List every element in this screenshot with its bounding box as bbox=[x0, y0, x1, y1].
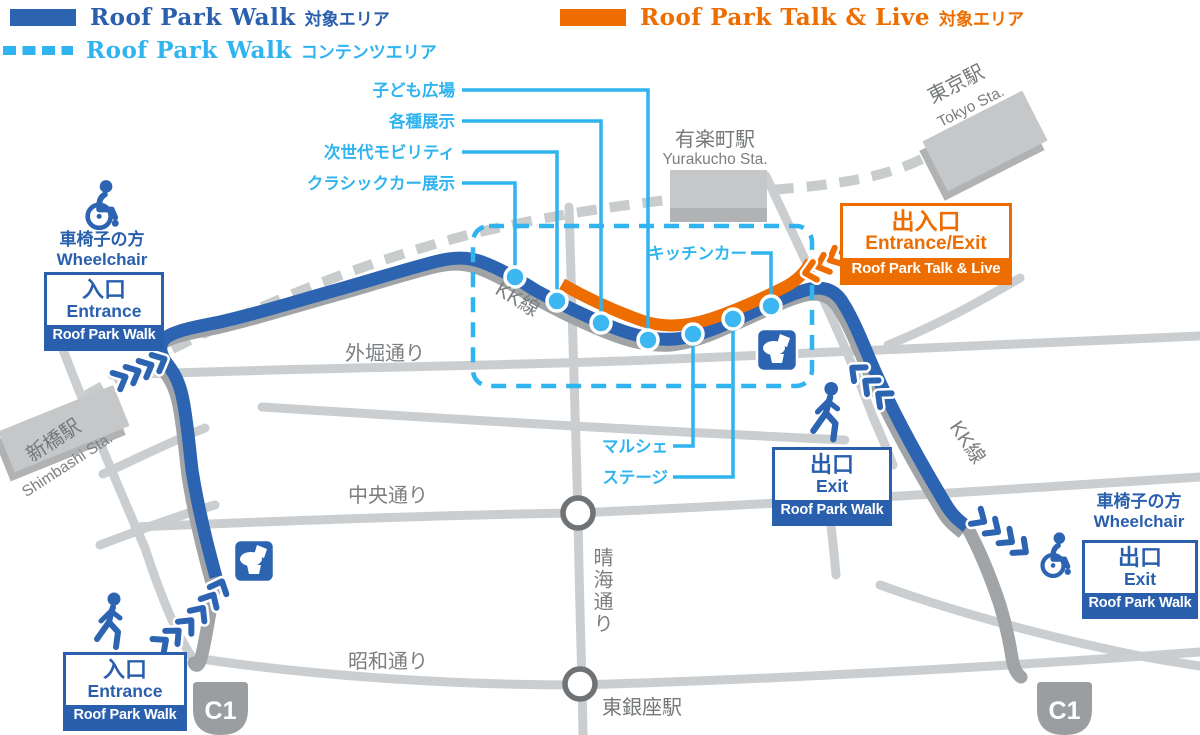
spot-dot bbox=[591, 313, 611, 333]
road-label-kk-east: KK線 bbox=[945, 417, 990, 469]
gate-talklive: 出入口 Entrance/Exit Roof Park Talk & Live bbox=[840, 203, 1012, 285]
wheelchair-exit-heading-en: Wheelchair bbox=[1078, 512, 1200, 532]
callout-kitchen-car: キッチンカー bbox=[648, 244, 747, 263]
gate-event-name: Roof Park Walk bbox=[47, 325, 161, 348]
map-canvas: 外堀通り 中央通り 昭和通り 晴海通り KK線 KK線 新橋駅 Shimbash… bbox=[0, 0, 1200, 735]
gate-label-en: Entrance bbox=[66, 682, 184, 704]
svg-text:KK線: KK線 bbox=[945, 417, 990, 469]
gate-event-name: Roof Park Walk bbox=[775, 500, 889, 523]
gate-label-en: Entrance bbox=[47, 302, 161, 324]
spot-dot bbox=[683, 324, 703, 344]
spot-dot bbox=[761, 296, 781, 316]
gate-label-jp: 出口 bbox=[1085, 543, 1195, 570]
callout-exhibitions: 各種展示 bbox=[388, 111, 455, 131]
svg-text:C1: C1 bbox=[1049, 697, 1081, 725]
gate-label-jp: 出口 bbox=[775, 450, 889, 477]
callout-stage: ステージ bbox=[602, 469, 668, 487]
wheelchair-entrance-heading: 車椅子の方 Wheelchair bbox=[36, 230, 168, 269]
legend-talklive-area-swatch bbox=[560, 9, 626, 26]
spot-dot bbox=[547, 291, 567, 311]
gate-east-exit: 出口 Exit Roof Park Walk bbox=[772, 447, 892, 526]
gate-label-jp: 入口 bbox=[66, 655, 184, 682]
road-label-harumi: 晴海通り bbox=[590, 547, 613, 635]
toilet-icon bbox=[757, 329, 797, 371]
roof-park-event-map: 外堀通り 中央通り 昭和通り 晴海通り KK線 KK線 新橋駅 Shimbash… bbox=[0, 0, 1200, 735]
gate-event-name: Roof Park Walk bbox=[66, 705, 184, 728]
gate-wheelchair-exit: 出口 Exit Roof Park Walk bbox=[1082, 540, 1198, 619]
chevrons-wheelchair-entrance bbox=[113, 351, 169, 390]
legend-talklive-area-suffix: 対象エリア bbox=[939, 5, 1024, 30]
callout-mobility: 次世代モビリティ bbox=[324, 142, 455, 162]
wheelchair-icon bbox=[88, 180, 119, 228]
wheelchair-icon bbox=[1043, 532, 1071, 576]
spot-dot bbox=[638, 330, 658, 350]
gate-label-en: Entrance/Exit bbox=[843, 234, 1009, 258]
road-label-chuo: 中央通り bbox=[348, 484, 428, 507]
toilet-icon bbox=[234, 540, 274, 582]
walking-person-icon bbox=[813, 382, 838, 439]
svg-text:有楽町駅: 有楽町駅 bbox=[675, 128, 755, 151]
road-label-sotobori: 外堀通り bbox=[345, 342, 425, 365]
legend-walk-area-suffix: 対象エリア bbox=[305, 5, 390, 30]
gate-label-jp: 入口 bbox=[47, 275, 161, 302]
legend-walk-area-title: Roof Park Walk bbox=[90, 4, 296, 31]
legend-walk-content-suffix: コンテンツエリア bbox=[301, 38, 437, 63]
intersection-circle bbox=[565, 669, 595, 699]
station-label-higashi-ginza: 東銀座駅 bbox=[602, 696, 682, 719]
svg-text:Yurakucho Sta.: Yurakucho Sta. bbox=[662, 151, 767, 168]
wheelchair-entrance-heading-en: Wheelchair bbox=[36, 250, 168, 270]
c1-badge-left: C1 bbox=[193, 682, 248, 735]
gate-label-en: Exit bbox=[1085, 570, 1195, 592]
gate-event-name: Roof Park Talk & Live bbox=[843, 258, 1009, 282]
wheelchair-exit-heading-jp: 車椅子の方 bbox=[1078, 492, 1200, 512]
callout-classic-car: クラシックカー展示 bbox=[307, 174, 455, 193]
road-showa bbox=[195, 652, 1200, 685]
road-mid bbox=[262, 407, 845, 440]
legend-walk-content-swatch bbox=[3, 46, 73, 55]
gate-label-jp: 出入口 bbox=[843, 206, 1009, 234]
legend-walk-area-swatch bbox=[10, 9, 76, 26]
legend-walk-content-title: Roof Park Walk bbox=[86, 37, 292, 64]
spot-dot bbox=[723, 309, 743, 329]
gate-event-name: Roof Park Walk bbox=[1085, 593, 1195, 616]
callout-kids-plaza: 子ども広場 bbox=[373, 80, 456, 100]
station-yurakucho-box bbox=[670, 170, 767, 222]
gate-south-entrance: 入口 Entrance Roof Park Walk bbox=[63, 652, 187, 731]
wheelchair-entrance-heading-jp: 車椅子の方 bbox=[36, 230, 168, 250]
wheelchair-exit-heading: 車椅子の方 Wheelchair bbox=[1078, 492, 1200, 531]
walking-person-icon bbox=[97, 593, 121, 648]
legend-talklive-area: Roof Park Talk & Live 対象エリア bbox=[560, 4, 1024, 31]
gate-wheelchair-entrance: 入口 Entrance Roof Park Walk bbox=[44, 272, 164, 351]
legend-walk-area: Roof Park Walk 対象エリア bbox=[10, 4, 390, 31]
svg-text:C1: C1 bbox=[205, 697, 237, 725]
road-northeast-cap bbox=[888, 278, 1020, 345]
intersection-circle bbox=[563, 498, 593, 528]
legend-talklive-area-title: Roof Park Talk & Live bbox=[640, 4, 930, 31]
c1-badge-right: C1 bbox=[1037, 682, 1092, 735]
callout-marche: マルシェ bbox=[602, 438, 668, 456]
gate-label-en: Exit bbox=[775, 477, 889, 499]
legend-walk-content: Roof Park Walk コンテンツエリア bbox=[3, 37, 437, 64]
road-label-showa: 昭和通り bbox=[348, 650, 428, 673]
station-label-yurakucho: 有楽町駅 Yurakucho Sta. bbox=[662, 128, 767, 168]
